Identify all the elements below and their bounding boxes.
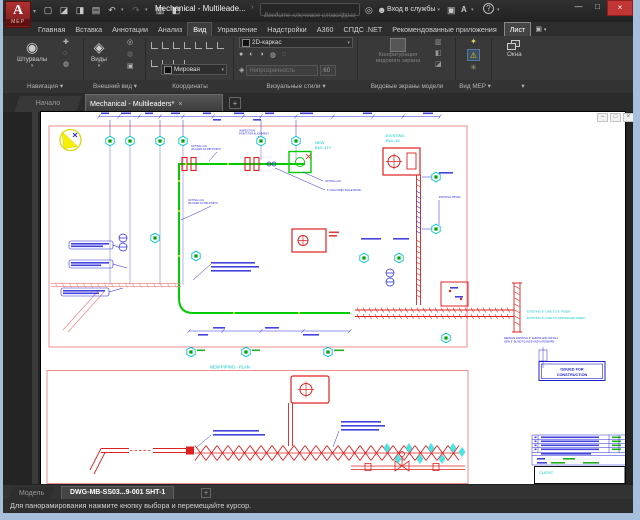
svg-text:EXISTING PIPING: EXISTING PIPING — [439, 195, 461, 199]
viewport-named-icon[interactable]: ◪ — [435, 60, 442, 68]
camera-icon[interactable]: ▣ — [127, 62, 134, 71]
svg-text:(PLACED AT MID POINT): (PLACED AT MID POINT) — [188, 201, 218, 205]
xray-icon[interactable]: ◈ — [239, 66, 244, 75]
tab-annotacii[interactable]: Аннотации — [107, 23, 153, 36]
svg-text:NEW 6" BLIND FLANGE AND HARDWA: NEW 6" BLIND FLANGE AND HARDWARE — [504, 340, 555, 344]
save-icon[interactable]: ◨ — [73, 3, 87, 17]
ucs-dropdown[interactable]: Мировая ▾ — [161, 64, 227, 75]
zoom-extents-icon[interactable]: ◍ — [63, 60, 69, 69]
file-tab-bar: Начало Mechanical - Multileaders*× + — [3, 93, 633, 112]
doc-close-button[interactable]: × — [623, 113, 633, 122]
panel-label-windows[interactable]: ▾ — [495, 80, 551, 93]
maximize-button[interactable]: □ — [588, 0, 607, 16]
vs-shaded-icon[interactable]: ● — [239, 51, 243, 59]
svg-text:LIFTING LUG: LIFTING LUG — [325, 179, 341, 183]
panel-visual-styles: 2D-каркас ▾ ● ◐ ◑ ◍ ◌ ◈ Непрозрачность 6… — [235, 36, 357, 80]
doc-restore-button[interactable]: □ — [610, 113, 621, 122]
ucs-dropdown-arrow-icon: ▾ — [221, 67, 224, 73]
wireframe-thumb-icon — [242, 39, 250, 47]
mep-badge: MEP — [6, 19, 30, 26]
redo-dropdown-icon[interactable]: ▾ — [145, 7, 151, 13]
tab-glavnaya[interactable]: Главная — [33, 23, 70, 36]
window-title: Mechanical - Multileade... — [155, 4, 251, 13]
steering-wheels-button[interactable]: ◉ Штурвалы ▾ — [17, 38, 47, 69]
sheet2-new-plan — [47, 347, 547, 484]
svg-text:BUL-1TY: BUL-1TY — [315, 145, 332, 150]
views-button[interactable]: ◈ Виды ▾ — [91, 38, 107, 69]
undo-dropdown-icon[interactable]: ▾ — [121, 7, 127, 13]
document-window-controls: – □ × — [597, 113, 633, 122]
tab-upravlenie[interactable]: Управление — [212, 23, 262, 36]
ribbon-tab-bar: Главная Вставка Аннотации Анализ Вид Упр… — [33, 22, 633, 36]
drawing-labels: EXISTING BUL-15 NEW BUL-1TY INSPECTION P… — [188, 129, 588, 476]
svg-text:CLIENT: CLIENT — [539, 470, 554, 475]
window-controls: — □ × — [569, 0, 633, 16]
print-icon[interactable]: ▤ — [89, 3, 103, 17]
svg-text:CONSTRUCTION: CONSTRUCTION — [557, 373, 588, 377]
doc-minimize-button[interactable]: – — [597, 113, 608, 122]
panel-model-viewports: Конфигурация видового экрана ▥ ◧ ◪ — [359, 36, 455, 80]
cad-drawing: EXISTING BUL-15 NEW BUL-1TY INSPECTION P… — [41, 112, 625, 484]
viewport-config-button[interactable]: Конфигурация видового экрана — [367, 38, 429, 64]
panel-windows: Окна — [493, 36, 551, 80]
file-tab-start[interactable]: Начало — [14, 96, 81, 112]
undo-icon[interactable]: ↶ — [105, 3, 119, 17]
file-tab-close-icon[interactable]: × — [178, 101, 182, 108]
viewport-join-icon[interactable]: ▥ — [435, 38, 442, 46]
panel-label-navigation[interactable]: Навигация ▾ — [7, 80, 83, 93]
help-icon[interactable]: ? — [483, 3, 494, 14]
views-dropdown-icon: ▾ — [98, 63, 101, 69]
viewport-config-icon — [390, 38, 406, 52]
signin-button[interactable]: Вход в службы ▾ — [387, 6, 440, 13]
file-tab-active[interactable]: Mechanical - Multileaders*× — [85, 94, 223, 112]
title-chevron-icon[interactable]: › — [251, 4, 253, 11]
tab-list[interactable]: Лист — [504, 22, 532, 37]
exchange-dropdown-icon[interactable]: ▾ — [471, 3, 474, 17]
panel-label-row: Навигация ▾ Внешний вид ▾ Координаты Виз… — [3, 80, 633, 93]
app-store-cart-icon[interactable]: ▣ — [447, 3, 456, 17]
layout-tab-new-button[interactable]: + — [201, 488, 211, 498]
svg-text:ISSUED FOR: ISSUED FOR — [560, 368, 583, 372]
viewport-restore-icon[interactable]: ◧ — [435, 49, 442, 57]
title-bar: A MEP ▾ ▢ ◪ ◨ ▤ ↶ ▾ ↷ ▾ ▥ ◧ ▾ Mechanical… — [3, 0, 633, 22]
open-file-icon[interactable]: ◪ — [57, 3, 71, 17]
sheet1-existing-plan — [49, 117, 522, 352]
close-button[interactable]: × — [607, 0, 633, 16]
panel-label-visual-styles[interactable]: Визуальные стили ▾ — [235, 80, 357, 93]
ribbon-display-icon[interactable]: ▣ ▾ — [535, 25, 546, 33]
tab-vid[interactable]: Вид — [187, 22, 212, 36]
tab-vstavka[interactable]: Вставка — [70, 23, 107, 36]
panel-label-coordinates[interactable]: Координаты — [147, 80, 233, 93]
layout-tab-bar: Модель DWG-MB-SS03...9-001 SHT-1 + — [3, 484, 633, 499]
redo-icon[interactable]: ↷ — [129, 3, 143, 17]
tab-spds-net[interactable]: СПДС .NET — [339, 23, 388, 36]
pan-icon[interactable]: ✚ — [63, 38, 69, 47]
steering-wheel-icon: ◉ — [26, 38, 38, 56]
windows-button[interactable]: Окна — [507, 40, 522, 58]
windows-icon — [507, 40, 521, 51]
drawing-canvas[interactable]: EXISTING BUL-15 NEW BUL-1TY INSPECTION P… — [41, 112, 625, 484]
svg-text:(PLACED AT MID POINT): (PLACED AT MID POINT) — [191, 147, 221, 151]
panel-appearance: ◈ Виды ▾ ◎ ◍ ▣ — [85, 36, 145, 80]
wheels-dropdown-icon: ▾ — [31, 63, 34, 69]
status-bar: Для панорамирования нажмите кнопку выбор… — [3, 499, 633, 513]
new-file-icon[interactable]: ▢ — [41, 3, 55, 17]
mep-style-icon[interactable]: ✳ — [467, 62, 480, 74]
signin-dropdown-icon: ▾ — [437, 7, 440, 13]
visual-style-arrow-icon: ▾ — [347, 40, 350, 46]
svg-text:EXISTING 6" LINE TO 6" RISER: EXISTING 6" LINE TO 6" RISER — [527, 310, 571, 314]
motion-icon[interactable]: ◍ — [127, 50, 134, 59]
svg-text:REMOVE EXISTING 6" ELBOW AND I: REMOVE EXISTING 6" ELBOW AND INSTALL — [504, 336, 559, 340]
opacity-slider[interactable]: Непрозрачность — [246, 65, 318, 76]
svg-text:NEW PIPING - PLAN: NEW PIPING - PLAN — [210, 365, 250, 370]
search-icon[interactable]: ◎ — [365, 3, 373, 17]
mep-warning-icon[interactable]: ⚠ — [467, 49, 480, 61]
panel-label-appearance[interactable]: Внешний вид ▾ — [85, 80, 145, 93]
tab-a360[interactable]: A360 — [312, 23, 339, 36]
app-menu-arrow-icon[interactable]: ▾ — [33, 8, 36, 15]
opacity-value[interactable]: 60 — [320, 65, 336, 76]
window-frame: A MEP ▾ ▢ ◪ ◨ ▤ ↶ ▾ ↷ ▾ ▥ ◧ ▾ Mechanical… — [0, 0, 640, 520]
orbit-icon[interactable]: ◌ — [63, 49, 69, 58]
world-ucs-icon — [164, 66, 172, 74]
help-search-box[interactable] — [260, 3, 360, 16]
app-window: A MEP ▾ ▢ ◪ ◨ ▤ ↶ ▾ ↷ ▾ ▥ ◧ ▾ Mechanical… — [3, 0, 633, 513]
title-block — [532, 362, 625, 484]
ribbon: ◉ Штурвалы ▾ ✚ ◌ ◍ ◈ Виды ▾ ◎ ◍ ▣ — [3, 36, 633, 93]
layout-tab-active[interactable]: DWG-MB-SS03...9-001 SHT-1 — [61, 486, 174, 500]
drawing-area: EXISTING BUL-15 NEW BUL-1TY INSPECTION P… — [3, 112, 633, 484]
svg-text:EXISTING 6" LINE TO SPRINKLER: EXISTING 6" LINE TO SPRINKLER RISER — [527, 316, 586, 320]
left-scroll-strip[interactable] — [32, 112, 38, 484]
app-menu-button[interactable]: A MEP — [5, 1, 31, 28]
panel-label-model-viewports[interactable]: Видовые экраны модели — [359, 80, 455, 93]
signin-person-icon[interactable]: ☻ — [377, 3, 386, 17]
tab-recommended-apps[interactable]: Рекомендованные приложения — [387, 23, 501, 36]
vs-lighting-icon[interactable]: ◌ — [282, 51, 286, 59]
svg-text:6" HIGH SPECTACLE BLIND: 6" HIGH SPECTACLE BLIND — [327, 188, 361, 192]
mep-bulb-icon[interactable]: ✦ — [467, 36, 480, 48]
svg-text:BUL-15: BUL-15 — [386, 138, 400, 143]
status-message: Для панорамирования нажмите кнопку выбор… — [10, 501, 251, 510]
help-dropdown-icon[interactable]: ▾ — [497, 3, 500, 17]
tab-nadstroyki[interactable]: Надстройки — [262, 23, 311, 36]
views-cube-icon: ◈ — [94, 38, 105, 56]
panel-mep-view: ✦ ⚠ ✳ — [457, 36, 491, 80]
minimize-button[interactable]: — — [569, 0, 588, 16]
exchange-apps-icon[interactable]: A — [461, 3, 467, 17]
tab-analiz[interactable]: Анализ — [153, 23, 187, 36]
autocad-logo-icon: A — [6, 2, 30, 19]
search-input[interactable] — [261, 10, 359, 21]
svg-text:POINT FOR ALIGNMENT: POINT FOR ALIGNMENT — [239, 132, 269, 136]
panel-coordinates: Мировая ▾ — [147, 36, 233, 80]
panel-label-mep-view[interactable]: Вид MEP ▾ — [455, 80, 495, 93]
vs-edges-icon[interactable]: ◐ — [249, 51, 253, 59]
panel-navigation: ◉ Штурвалы ▾ ✚ ◌ ◍ — [7, 36, 83, 80]
named-views-icon[interactable]: ◎ — [127, 38, 134, 47]
vs-shadows-icon[interactable]: ◑ — [259, 51, 263, 59]
visual-style-dropdown[interactable]: 2D-каркас ▾ — [239, 37, 353, 48]
vs-materials-icon[interactable]: ◍ — [270, 51, 276, 59]
file-tab-new-button[interactable]: + — [229, 97, 241, 109]
